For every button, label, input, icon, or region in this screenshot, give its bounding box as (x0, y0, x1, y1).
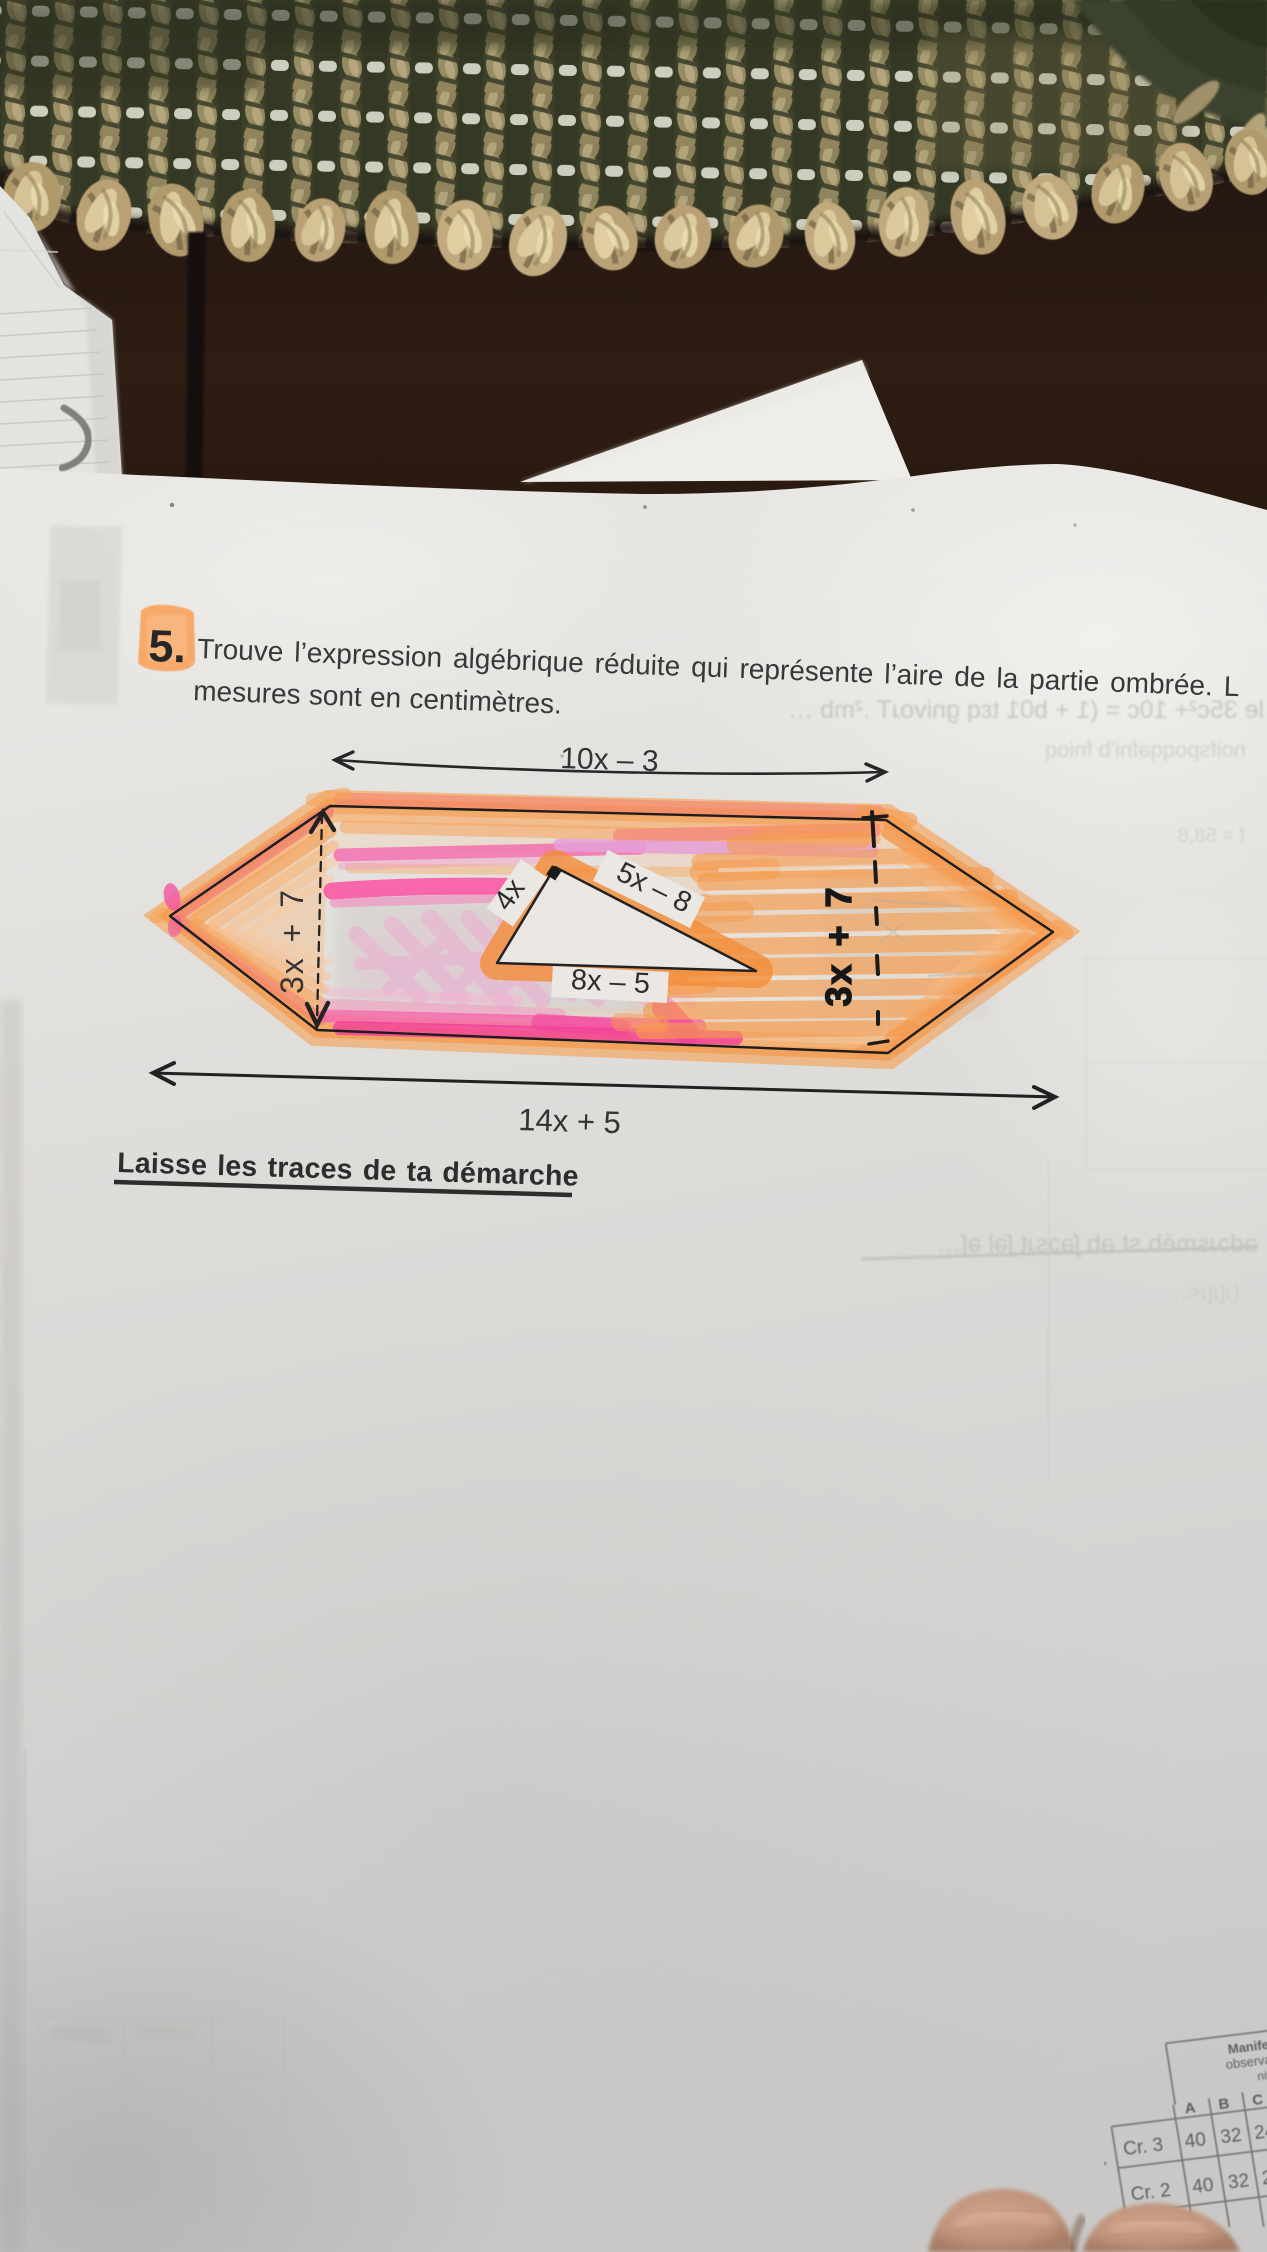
svg-text:(ɹɭɹɭɹ<…: (ɹɭɹɭɹ<… (1166, 1280, 1240, 1305)
svg-text:40: 40 (1184, 2129, 1208, 2152)
svg-text:40: 40 (1191, 2175, 1215, 2198)
svg-text:3x + 7: 3x + 7 (818, 885, 859, 1006)
svg-text:10x – 3: 10x – 3 (560, 742, 659, 778)
svg-text:5.: 5. (148, 620, 187, 672)
svg-text:14x + 5: 14x + 5 (518, 1102, 622, 1140)
svg-text:3x + 7: 3x + 7 (274, 888, 310, 994)
svg-text:8x – 5: 8x – 5 (570, 964, 651, 1000)
svg-text:niv: niv (1257, 2068, 1267, 2084)
svg-text:C: C (1251, 2091, 1264, 2109)
svg-text:32: 32 (1227, 2170, 1251, 2193)
svg-text:A: A (1184, 2099, 1197, 2117)
svg-text:f = 58,8: f = 58,8 (1178, 825, 1245, 847)
svg-text:noifspoqqəfni'b fnioq: noifspoqqəfni'b fnioq (1045, 737, 1246, 762)
svg-text:32: 32 (1219, 2125, 1243, 2148)
svg-text:B: B (1218, 2095, 1231, 2113)
svg-text:24: 24 (1253, 2121, 1267, 2144)
